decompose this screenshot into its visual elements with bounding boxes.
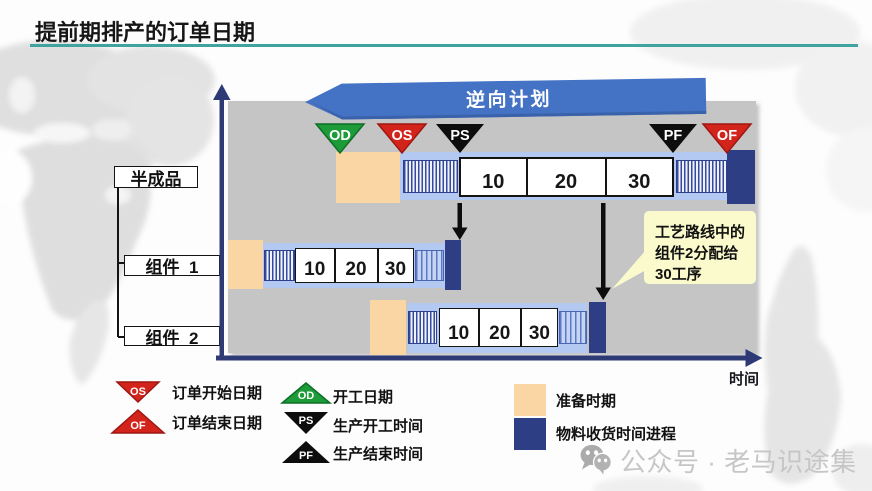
svg-text:OS: OS — [130, 386, 146, 398]
svg-text:PS: PS — [299, 415, 314, 427]
svg-text:OF: OF — [130, 420, 146, 432]
svg-text:PF: PF — [299, 450, 313, 462]
svg-text:OD: OD — [298, 390, 315, 402]
